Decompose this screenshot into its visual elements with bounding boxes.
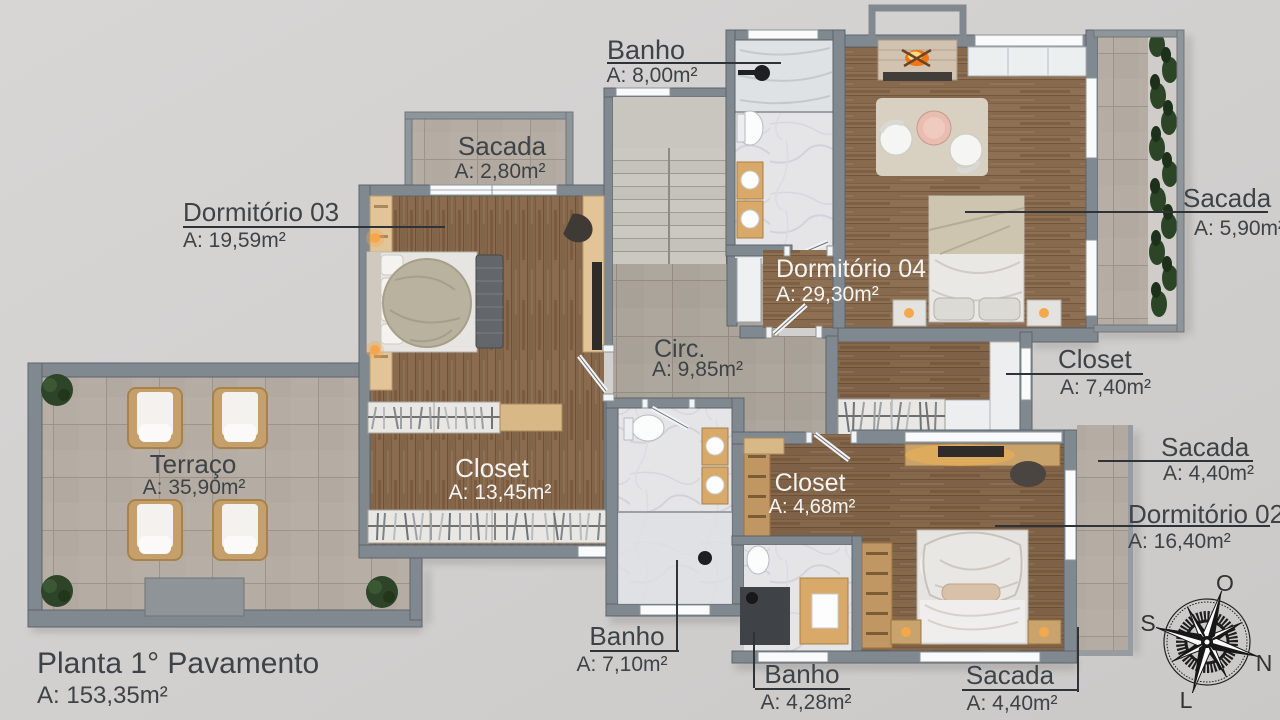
svg-text:A: 4,68m²: A: 4,68m² xyxy=(769,496,856,518)
svg-text:A: 13,45m²: A: 13,45m² xyxy=(449,481,552,504)
svg-text:L: L xyxy=(1180,687,1193,713)
svg-text:Sacada: Sacada xyxy=(458,131,547,161)
svg-text:A: 16,40m²: A: 16,40m² xyxy=(1128,530,1231,553)
svg-text:A: 5,90m²: A: 5,90m² xyxy=(1194,217,1280,240)
svg-text:Planta 1° Pavamento: Planta 1° Pavamento xyxy=(37,647,319,680)
svg-text:A: 8,00m²: A: 8,00m² xyxy=(606,64,697,87)
svg-text:Closet: Closet xyxy=(455,453,529,483)
svg-text:Banho: Banho xyxy=(589,621,664,651)
svg-text:A: 4,40m²: A: 4,40m² xyxy=(1163,462,1254,485)
svg-text:Closet: Closet xyxy=(775,469,846,497)
svg-text:A: 19,59m²: A: 19,59m² xyxy=(183,229,286,252)
svg-text:A: 7,10m²: A: 7,10m² xyxy=(576,653,667,676)
svg-text:Dormitório 02: Dormitório 02 xyxy=(1128,499,1280,529)
svg-text:Banho: Banho xyxy=(764,659,839,689)
svg-text:A: 35,90m²: A: 35,90m² xyxy=(143,476,246,499)
svg-text:A: 29,30m²: A: 29,30m² xyxy=(776,283,879,306)
svg-text:S: S xyxy=(1140,610,1155,636)
svg-text:Sacada: Sacada xyxy=(966,660,1055,690)
svg-text:Sacada: Sacada xyxy=(1183,183,1272,213)
svg-text:Dormitório 04: Dormitório 04 xyxy=(776,255,926,283)
svg-text:Dormitório 03: Dormitório 03 xyxy=(183,197,339,227)
svg-text:Closet: Closet xyxy=(1058,344,1132,374)
svg-text:A: 7,40m²: A: 7,40m² xyxy=(1060,376,1151,399)
svg-text:A: 153,35m²: A: 153,35m² xyxy=(37,682,168,709)
svg-text:A: 4,28m²: A: 4,28m² xyxy=(760,691,851,714)
svg-text:A: 9,85m²: A: 9,85m² xyxy=(652,358,743,381)
svg-text:A: 2,80m²: A: 2,80m² xyxy=(454,160,545,183)
svg-text:Sacada: Sacada xyxy=(1161,432,1250,462)
svg-text:N: N xyxy=(1256,650,1273,676)
svg-text:Terraço: Terraço xyxy=(150,449,237,479)
svg-text:A: 4,40m²: A: 4,40m² xyxy=(966,692,1057,715)
svg-text:O: O xyxy=(1216,570,1234,596)
svg-text:Banho: Banho xyxy=(607,35,685,65)
